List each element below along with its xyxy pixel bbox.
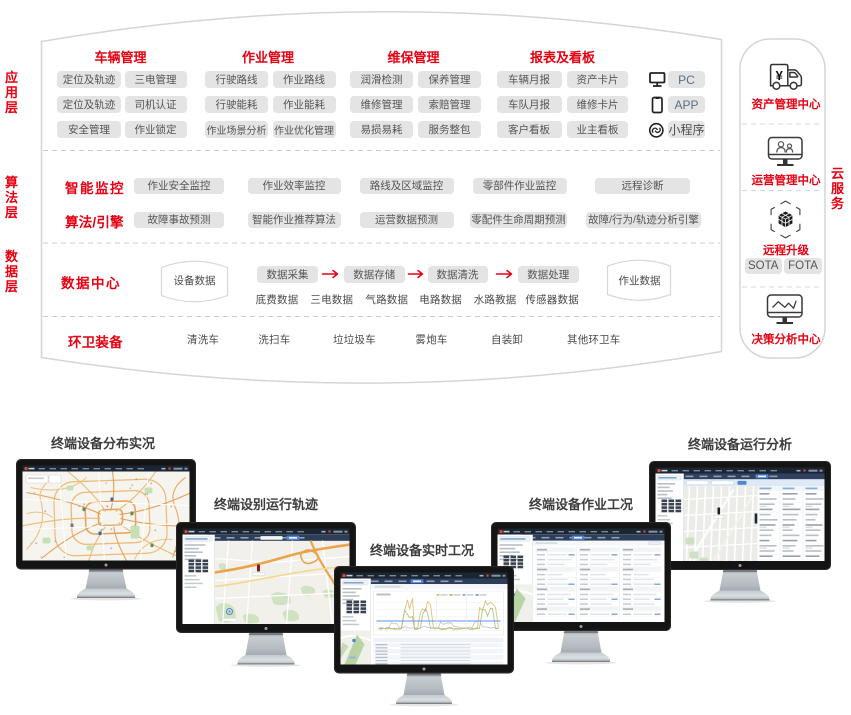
svg-text:¥: ¥ [776,68,784,83]
